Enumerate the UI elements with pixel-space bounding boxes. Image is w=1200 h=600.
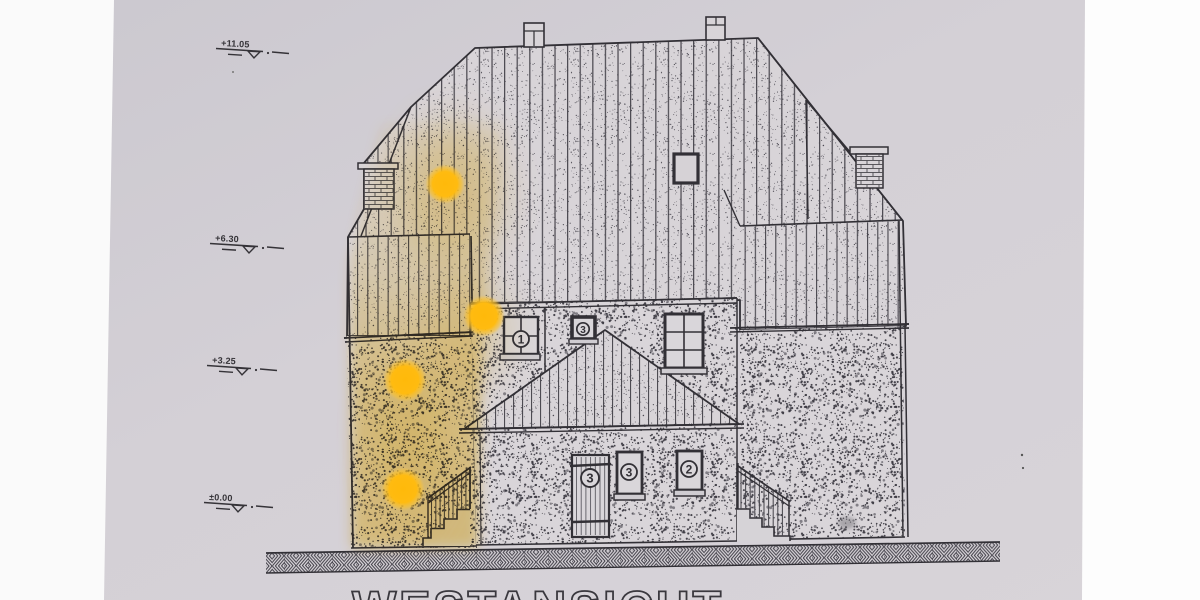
svg-text:3: 3 bbox=[626, 466, 633, 480]
svg-text:+6.30: +6.30 bbox=[215, 233, 239, 244]
svg-text:±0.00: ±0.00 bbox=[209, 492, 233, 503]
svg-text:2: 2 bbox=[686, 463, 693, 477]
svg-text:3: 3 bbox=[580, 325, 586, 336]
svg-text:WESTANSICHT: WESTANSICHT bbox=[352, 581, 724, 600]
svg-text:+11.05: +11.05 bbox=[221, 38, 250, 49]
svg-text:+3.25: +3.25 bbox=[212, 355, 236, 366]
svg-text:3: 3 bbox=[586, 471, 593, 486]
